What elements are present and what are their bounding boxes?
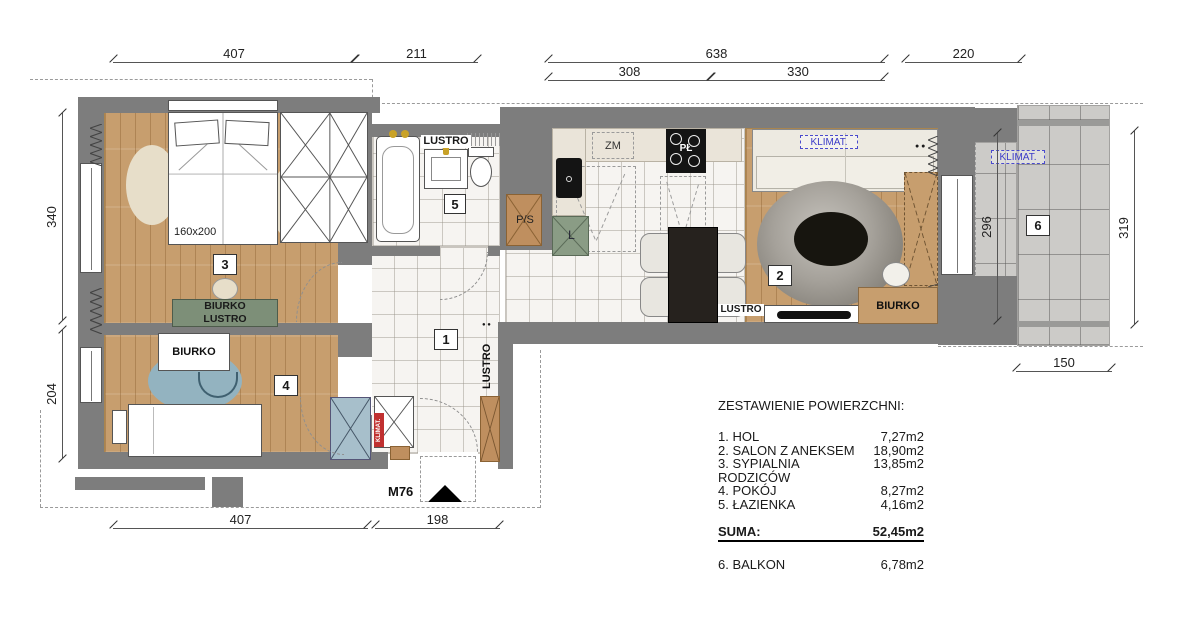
- legend-row: 5. ŁAZIENKA4,16m2: [718, 498, 924, 512]
- klimat-balcony-label: KLIMAT.: [991, 150, 1045, 164]
- wall: [498, 322, 513, 469]
- room-number-kidroom: 4: [274, 375, 298, 396]
- faucet-icon: [389, 130, 397, 138]
- desk-chair: [882, 262, 910, 287]
- hall-cabinet: [480, 396, 500, 462]
- stool: [212, 278, 238, 300]
- dimension-left-340: 340: [62, 113, 63, 320]
- stairwell-wall: [212, 477, 243, 507]
- dishwasher-label: ZM: [592, 132, 634, 159]
- legend-row: 1. HOL7,27m2: [718, 430, 924, 444]
- dimension-bottom-198: 198: [375, 528, 500, 529]
- washer-dryer: P/S: [506, 194, 542, 246]
- dimension-right-319: 319: [1134, 131, 1135, 324]
- wardrobe-recess: [168, 100, 278, 111]
- kidroom-window: [80, 347, 102, 403]
- legend-row: 3. SYPIALNIA RODZICÓW13,85m2: [718, 457, 924, 484]
- bedroom-desk-label: BIURKO: [204, 300, 245, 312]
- bedroom-door-opening: [338, 265, 372, 323]
- property-line: [540, 350, 541, 508]
- bedroom-wardrobe: [280, 112, 368, 243]
- salon-mirror-label: LUSTRO: [718, 304, 764, 316]
- property-line: [938, 346, 1143, 347]
- dining-table: [668, 227, 718, 323]
- hall-mirror-label: LUSTRO: [481, 343, 495, 389]
- wall: [488, 246, 500, 256]
- dimension-top-220: 220: [905, 62, 1022, 63]
- pillow: [224, 120, 269, 146]
- washer-dryer-label: P/S: [507, 214, 543, 226]
- fridge-label: L: [553, 228, 590, 242]
- bed-size-label: 160x200: [174, 226, 216, 238]
- radiator-icon: [90, 124, 102, 166]
- legend-balcony-row: 6. BALKON6,78m2: [718, 558, 924, 572]
- wall: [498, 322, 940, 344]
- legend-row: 4. POKÓJ8,27m2: [718, 484, 924, 498]
- dining-chair: [640, 233, 670, 273]
- wall: [975, 108, 1017, 142]
- area-legend: ZESTAWIENIE POWIERZCHNI: 1. HOL7,27m2 2.…: [718, 398, 924, 572]
- cooktop-label: PŁ: [666, 143, 706, 154]
- legend-total-row: SUMA:52,45m2: [718, 525, 924, 543]
- dining-chair: [640, 277, 670, 317]
- dimension-bottom-407: 407: [113, 528, 368, 529]
- dining-chair: [716, 233, 746, 273]
- salon-desk-label: BIURKO: [876, 300, 919, 312]
- electrical-points-icon: ● ●: [915, 143, 925, 150]
- dimension-top-211: 211: [355, 62, 478, 63]
- property-line: [30, 79, 372, 80]
- dimension-top-330: 330: [711, 80, 885, 81]
- fridge: L: [552, 216, 589, 256]
- mirror-hatch: [467, 133, 500, 146]
- salon-wardrobe: [904, 172, 938, 286]
- floor-plan: 160x200 BIURKO LUSTRO 3 BIURKO 4 KLIMAT.…: [0, 0, 1200, 617]
- room-number-salon: 2: [768, 265, 792, 286]
- dimension-right-150: 150: [1016, 371, 1112, 372]
- hall-cabinet: [390, 446, 410, 460]
- property-line: [372, 103, 1143, 104]
- room-number-bathroom: 5: [444, 194, 466, 214]
- dimension-top-407: 407: [113, 62, 355, 63]
- heater-unit: [112, 410, 127, 444]
- dimension-top-308: 308: [548, 80, 711, 81]
- pillow: [174, 119, 220, 146]
- balcony-railing: [1017, 321, 1109, 327]
- property-line: [40, 410, 41, 507]
- coffee-table: [794, 212, 868, 266]
- klimat-riser-label: KLIMAT.: [374, 413, 384, 447]
- entrance-unit-label: M76: [388, 484, 413, 499]
- bathtub: [376, 136, 420, 242]
- toilet-bowl: [470, 157, 492, 187]
- stairwell-wall: [75, 477, 205, 490]
- legend-row: 2. SALON Z ANEKSEM18,90m2: [718, 444, 924, 458]
- tv: [777, 311, 851, 319]
- kidroom-bed: [128, 404, 262, 457]
- balcony-door: [941, 175, 973, 275]
- room-number-bedroom: 3: [213, 254, 237, 275]
- klimat-salon-label: KLIMAT.: [800, 135, 858, 149]
- dishwasher-text: ZM: [605, 140, 621, 152]
- property-line: [40, 507, 540, 508]
- kidroom-desk: BIURKO: [158, 333, 230, 371]
- wall: [548, 107, 940, 128]
- kitchen-sink: [556, 158, 582, 198]
- kidroom-desk-label: BIURKO: [172, 346, 215, 358]
- electrical-points-icon: ● ●: [482, 322, 491, 328]
- radiator-icon: [90, 288, 102, 334]
- dimension-left-204: 204: [62, 330, 63, 458]
- wall: [975, 276, 1017, 345]
- legend-title: ZESTAWIENIE POWIERZCHNI:: [718, 398, 924, 413]
- wall: [372, 246, 440, 256]
- dimension-right-296: 296: [997, 133, 998, 320]
- toilet: [468, 147, 494, 157]
- faucet-icon: [401, 130, 409, 138]
- room-number-balcony: 6: [1026, 215, 1050, 236]
- salon-desk: BIURKO: [858, 287, 938, 324]
- bathroom-mirror-label: LUSTRO: [421, 135, 471, 148]
- bedroom-desk: BIURKO LUSTRO: [172, 299, 278, 327]
- bedroom-window: [80, 163, 102, 273]
- washbasin: [424, 149, 468, 189]
- tv-console: [764, 305, 862, 323]
- dimension-top-638: 638: [548, 62, 885, 63]
- balcony-railing: [1017, 120, 1109, 126]
- bedroom-mirror-label: LUSTRO: [203, 313, 246, 325]
- entrance-arrow-icon: [428, 485, 462, 502]
- room-number-hall: 1: [434, 329, 458, 350]
- double-bed: 160x200: [168, 112, 278, 245]
- cooktop: PŁ: [666, 129, 706, 173]
- radiator-icon: [928, 136, 938, 176]
